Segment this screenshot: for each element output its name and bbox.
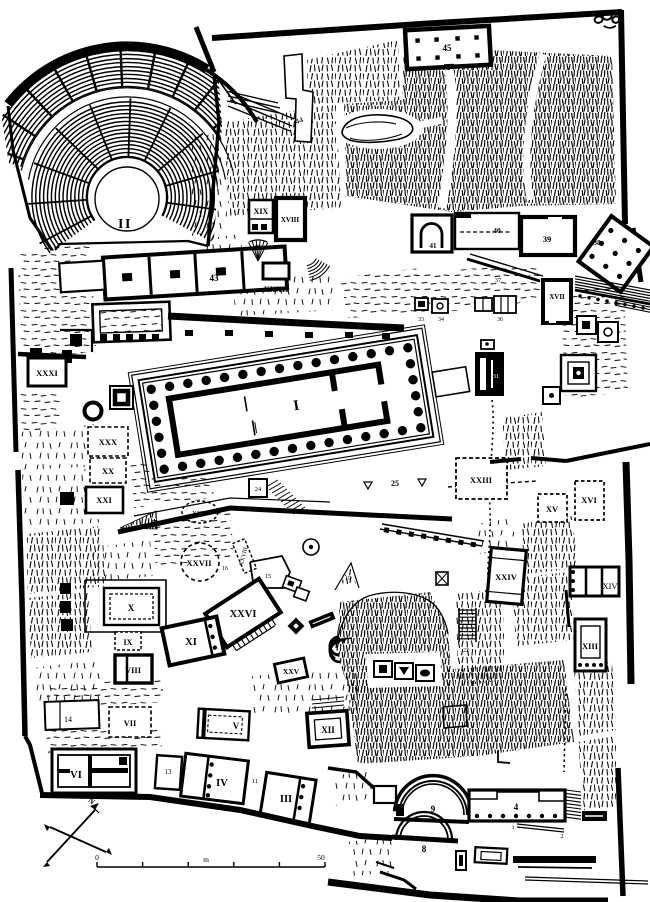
svg-text:XXIII: XXIII: [470, 475, 493, 485]
svg-text:XX: XX: [102, 466, 115, 476]
svg-text:41: 41: [430, 242, 438, 250]
svg-text:XXI: XXI: [96, 495, 112, 505]
svg-text:4: 4: [514, 802, 519, 812]
svg-text:37: 37: [495, 277, 502, 284]
svg-text:XXVII: XXVII: [186, 558, 212, 568]
svg-text:22: 22: [463, 648, 469, 654]
svg-text:IV: IV: [216, 778, 228, 789]
svg-text:XXVI: XXVI: [230, 609, 257, 620]
svg-text:15: 15: [265, 573, 272, 580]
svg-text:XVI: XVI: [581, 495, 597, 505]
svg-text:XIII: XIII: [582, 641, 599, 651]
svg-text:XIX: XIX: [254, 207, 269, 216]
svg-text:21: 21: [361, 666, 367, 672]
svg-text:XI: XI: [185, 637, 197, 648]
svg-text:24: 24: [255, 486, 262, 493]
svg-text:31: 31: [493, 373, 500, 380]
svg-text:XVIII: XVIII: [281, 216, 300, 224]
svg-text:XXIX: XXIX: [192, 510, 209, 517]
svg-text:XXIV: XXIV: [495, 572, 518, 582]
svg-text:VI: VI: [70, 770, 82, 781]
svg-text:14: 14: [64, 715, 72, 724]
svg-text:XV: XV: [546, 504, 559, 514]
svg-text:8: 8: [422, 844, 427, 854]
svg-text:m: m: [203, 855, 209, 864]
svg-text:II: II: [118, 217, 132, 232]
svg-text:XVII: XVII: [549, 293, 565, 301]
svg-text:36: 36: [497, 317, 503, 323]
svg-text:33: 33: [418, 317, 424, 323]
svg-text:XII: XII: [321, 725, 335, 735]
svg-text:XXX: XXX: [99, 437, 118, 447]
svg-text:XIV: XIV: [602, 581, 618, 591]
svg-text:25: 25: [391, 479, 399, 488]
svg-text:XXXII: XXXII: [263, 284, 289, 294]
svg-text:11: 11: [252, 778, 258, 785]
svg-text:VIII: VIII: [125, 665, 142, 675]
svg-text:V: V: [233, 721, 240, 731]
svg-text:45: 45: [443, 43, 453, 53]
svg-text:50: 50: [317, 853, 325, 862]
svg-text:3: 3: [512, 825, 515, 831]
svg-text:X: X: [128, 603, 135, 613]
svg-text:13: 13: [165, 768, 173, 776]
svg-text:39: 39: [543, 234, 552, 244]
svg-text:XXXI: XXXI: [36, 368, 58, 378]
svg-text:40: 40: [493, 226, 501, 235]
svg-text:16: 16: [222, 566, 228, 572]
svg-text:VII: VII: [124, 718, 137, 728]
svg-text:38: 38: [593, 238, 601, 247]
svg-text:IX: IX: [124, 638, 133, 647]
svg-text:2: 2: [560, 833, 563, 840]
svg-text:III: III: [280, 794, 292, 805]
svg-text:XXV: XXV: [283, 667, 300, 676]
svg-text:0: 0: [95, 853, 99, 862]
svg-text:43: 43: [210, 273, 220, 283]
svg-text:34: 34: [438, 317, 444, 323]
